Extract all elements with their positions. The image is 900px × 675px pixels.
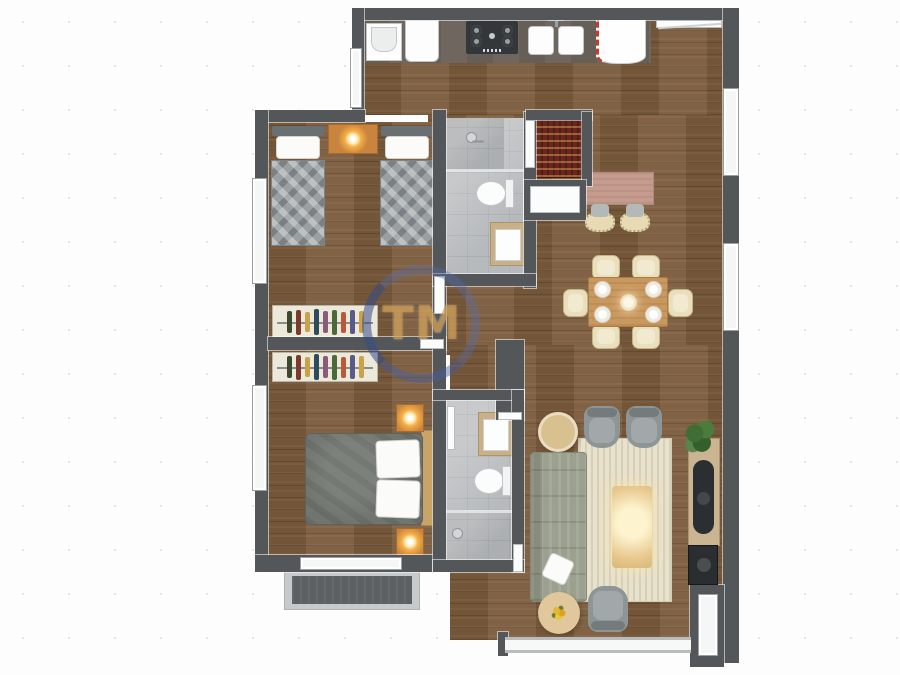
dining-chair: [632, 324, 660, 349]
vanity: [490, 222, 524, 266]
hanging-clothes: [359, 356, 364, 378]
master-bed-pillow: [375, 479, 420, 519]
toilet: [476, 181, 506, 206]
vanity-sink: [483, 419, 509, 451]
shower-arm-icon: [473, 141, 484, 143]
tv: [693, 460, 714, 534]
lamp-glow-icon: [397, 529, 423, 555]
bathroom-top-shower: [446, 118, 504, 170]
bath-shelf: [447, 406, 455, 450]
plate: [594, 281, 611, 298]
plate: [645, 306, 662, 323]
window-column-glass: [698, 594, 718, 656]
refrigerator: [596, 18, 646, 64]
gas-hob-icon: [466, 21, 518, 54]
burner-icon: [471, 25, 482, 36]
hanging-clothes: [296, 355, 301, 380]
window-master-left: [252, 385, 267, 491]
hanging-clothes: [287, 311, 292, 333]
window-kitchen-left: [350, 48, 362, 108]
bar-stool: [585, 212, 615, 232]
nightstand-with-lamp: [396, 528, 424, 556]
shower-head-icon: [452, 528, 463, 539]
window-right-2: [723, 243, 739, 331]
twin-bed-pillow: [385, 136, 429, 159]
twin-bed-blanket: [271, 160, 325, 246]
hanging-clothes: [305, 312, 310, 332]
master-bed-pillow: [375, 439, 420, 479]
nightstand-with-lamp: [328, 124, 378, 154]
kitchen-cabinet: [405, 20, 439, 62]
door-hall-cap: [498, 412, 522, 420]
wall-top: [355, 8, 738, 20]
potted-plant-icon: [682, 418, 718, 456]
twin-bed-pillow: [276, 136, 320, 159]
dining-chair: [563, 289, 588, 317]
hanging-clothes: [332, 310, 337, 335]
burner-icon: [502, 36, 513, 47]
twin-bed-headboard: [272, 126, 324, 136]
hanging-clothes: [323, 311, 328, 333]
hanging-clothes: [296, 310, 301, 335]
centerpiece-bowl: [620, 294, 637, 311]
hanging-clothes: [350, 310, 355, 334]
window-right-1: [723, 88, 739, 176]
round-side-table: [538, 412, 578, 452]
hanging-clothes: [323, 356, 328, 378]
wall-bath-bottom-bottom: [433, 560, 524, 572]
plate: [594, 306, 611, 323]
balcony-floor: [292, 576, 412, 604]
twin-bed-headboard: [381, 126, 433, 136]
lamp-glow-icon: [329, 125, 377, 153]
hanging-clothes: [314, 309, 319, 335]
wall-twin-top: [255, 110, 365, 122]
speaker: [688, 545, 718, 585]
hanging-clothes: [341, 312, 346, 333]
hob-center: [489, 33, 495, 39]
armchair: [626, 406, 662, 448]
door-bath-top: [525, 120, 535, 168]
hob-knobs: [483, 49, 503, 52]
armchair: [588, 586, 628, 632]
toilet-tank: [505, 179, 514, 208]
utility-sink-basin: [371, 27, 397, 52]
floorplan-canvas: { "watermark": { "text": "TM", "ring_col…: [0, 0, 900, 675]
dining-chair: [668, 289, 693, 317]
flower-ottoman: [538, 592, 580, 634]
burner-icon: [471, 36, 482, 47]
window-living-bottom: [505, 637, 691, 653]
hanging-clothes: [332, 355, 337, 380]
watermark-text: TM: [362, 296, 482, 350]
plate: [645, 281, 662, 298]
hanging-clothes: [305, 357, 310, 377]
vanity-sink: [495, 229, 521, 261]
hanging-clothes: [350, 355, 355, 379]
burner-icon: [502, 25, 513, 36]
lamp-glow-icon: [397, 405, 423, 431]
hanging-clothes: [341, 357, 346, 378]
dining-chair: [592, 324, 620, 349]
shower-glass-divider: [446, 169, 524, 172]
coffee-table: [612, 486, 652, 568]
double-sink-left: [528, 26, 554, 55]
window-master-bottom: [300, 557, 402, 570]
wall-pantry-right: [582, 112, 592, 186]
open-wardrobe-master: [272, 352, 378, 382]
toilet: [474, 468, 504, 494]
double-sink-right: [558, 26, 584, 55]
toilet-tank: [502, 466, 511, 496]
nightstand-with-lamp: [396, 404, 424, 432]
armchair: [584, 406, 620, 448]
wall-bath-bottom-top: [433, 390, 524, 400]
breakfast-island: [582, 172, 654, 205]
shower-glass-divider: [446, 510, 512, 513]
red-pantry-shelf: [534, 120, 582, 178]
twin-bed-blanket: [380, 160, 434, 246]
window-twin-left: [252, 178, 267, 284]
appliance-niche: [530, 186, 580, 213]
door-bath-bottom: [513, 544, 523, 572]
hanging-clothes: [287, 356, 292, 378]
bar-stool: [620, 212, 650, 232]
utility-sink: [366, 23, 402, 61]
hanging-clothes: [314, 354, 319, 380]
